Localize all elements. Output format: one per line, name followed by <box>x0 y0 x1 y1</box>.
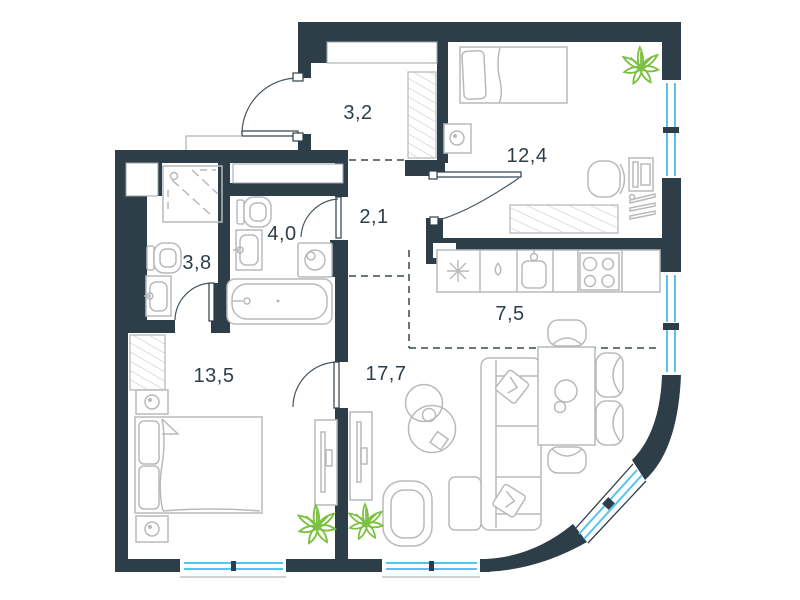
floor-plan-page: 3,2 12,4 2,1 4,0 3,8 7,5 13,5 17,7 <box>0 0 800 600</box>
dining-chair <box>596 353 623 397</box>
wall-divider-baths <box>218 150 230 283</box>
sofa-chaise <box>449 477 481 530</box>
window-divider <box>429 561 434 571</box>
plant-icon <box>297 505 336 544</box>
room-label-bedroom-top: 12,4 <box>507 145 548 167</box>
window-divider <box>231 561 236 571</box>
entry-door <box>186 73 303 150</box>
bathroom-fixtures <box>227 197 332 324</box>
window-divider <box>663 127 679 133</box>
nightstand <box>444 124 471 153</box>
coffee-table-decor <box>430 432 448 450</box>
fridge-snowflake-icon <box>447 260 469 282</box>
coffee-table <box>409 406 456 453</box>
room-label-entry-hall: 3,2 <box>343 102 372 124</box>
sink-icon <box>233 230 262 270</box>
wall-entry-left-upper <box>298 22 311 78</box>
wardrobe-entry <box>408 72 436 158</box>
toilet-icon <box>237 197 271 227</box>
bathtub-icon <box>227 279 332 324</box>
room-label-bedroom-bottom: 13,5 <box>194 365 235 387</box>
room-label-living-room: 17,7 <box>366 363 407 385</box>
wall-curved-upper <box>632 375 681 480</box>
wardrobe <box>130 335 165 390</box>
lamp-dot <box>453 134 457 138</box>
tv-unit <box>350 412 372 500</box>
bathroom-door <box>301 197 341 238</box>
wall-bottom-middle <box>286 559 382 572</box>
nightstand <box>136 516 168 542</box>
kitchen-furniture <box>437 250 660 292</box>
niche-entry <box>327 42 437 63</box>
floor-plan: 3,2 12,4 2,1 4,0 3,8 7,5 13,5 17,7 <box>0 0 800 600</box>
armchair <box>383 481 432 546</box>
wall-bottom-left <box>115 559 180 572</box>
sink-icon <box>144 276 171 316</box>
monitor <box>633 162 638 187</box>
wall-right-upper <box>662 42 681 80</box>
desk-chair <box>588 161 620 197</box>
room-label-bathroom: 4,0 <box>267 223 296 245</box>
dining-table <box>538 347 595 445</box>
toilet-icon <box>147 243 181 273</box>
coffee-table <box>406 385 443 422</box>
kitchen-counter <box>437 250 660 292</box>
bedroom-top-door <box>429 171 521 225</box>
bedroom-bottom-door <box>293 362 339 408</box>
niche-above-bathroom <box>233 164 343 183</box>
window-diagonal <box>575 464 646 543</box>
nightstand <box>136 390 168 414</box>
dining-chair <box>548 447 586 473</box>
wall-niche-stub <box>311 42 327 63</box>
dining-chair <box>548 320 586 346</box>
window-divider <box>663 323 679 330</box>
pillow <box>139 421 159 464</box>
wall-bathroom-top <box>230 183 345 196</box>
wall-right-middle <box>662 176 681 272</box>
washing-machine-icon <box>298 243 332 277</box>
plant-icon <box>348 504 383 540</box>
coffee-table-decor <box>423 409 436 422</box>
niche-shaft-left <box>126 163 158 196</box>
room-label-kitchen: 7,5 <box>495 303 524 325</box>
shower-room-door <box>175 283 214 321</box>
tv-unit <box>315 420 337 505</box>
rug <box>510 205 618 233</box>
pillow <box>139 466 159 509</box>
wall-left-thick <box>115 196 147 320</box>
dining-chair <box>596 401 623 445</box>
pillow <box>462 50 486 99</box>
wall-shower-room-bottom <box>128 320 175 333</box>
wall-top <box>298 22 681 42</box>
wall-kitchen-top <box>443 238 662 250</box>
room-label-shower-room: 3,8 <box>182 252 211 274</box>
living-room-furniture <box>350 320 623 546</box>
wall-curved-lower <box>485 524 587 572</box>
room-label-corridor: 2,1 <box>359 206 388 228</box>
shower-icon <box>163 166 222 222</box>
wall-divider-mid <box>335 277 348 362</box>
plant-icon <box>622 47 659 84</box>
